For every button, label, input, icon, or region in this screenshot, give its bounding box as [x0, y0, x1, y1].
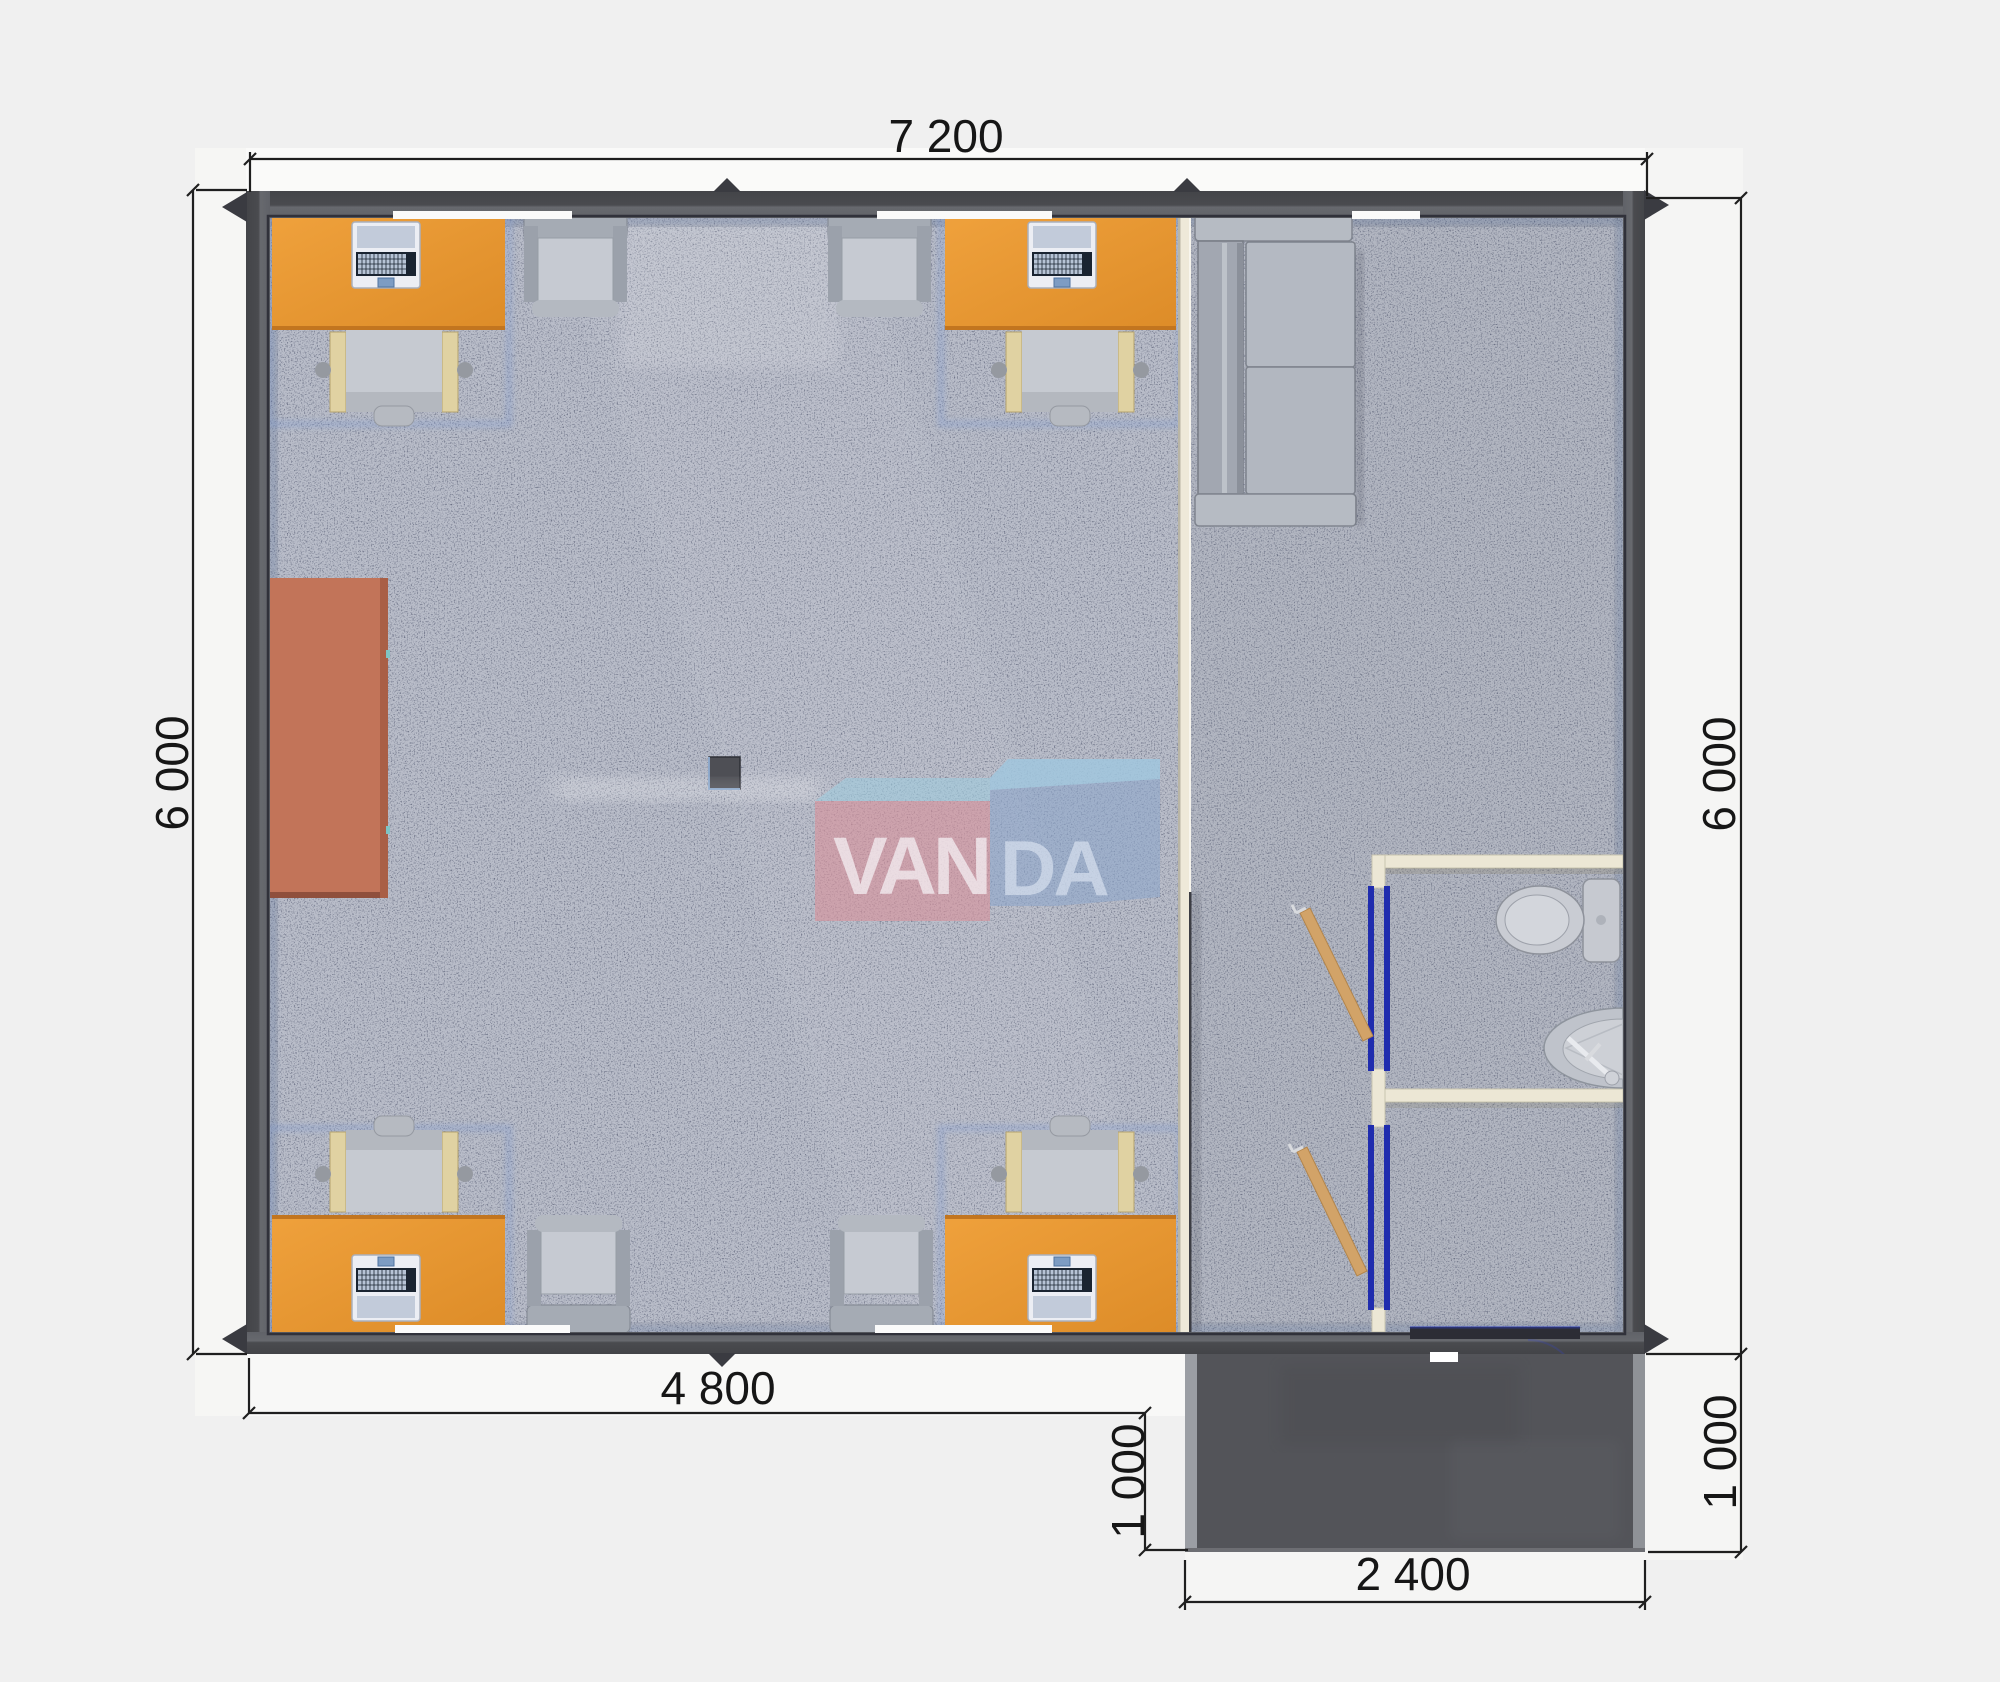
svg-text:DA: DA [1000, 824, 1108, 912]
svg-text:4 800: 4 800 [660, 1362, 775, 1414]
svg-text:7 200: 7 200 [888, 110, 1003, 162]
svg-text:1 000: 1 000 [1694, 1394, 1746, 1509]
svg-text:2 400: 2 400 [1355, 1548, 1470, 1600]
svg-text:6 000: 6 000 [146, 715, 198, 830]
svg-text:VAN: VAN [833, 821, 988, 912]
svg-text:1 000: 1 000 [1102, 1423, 1154, 1538]
svg-text:6 000: 6 000 [1693, 716, 1745, 831]
